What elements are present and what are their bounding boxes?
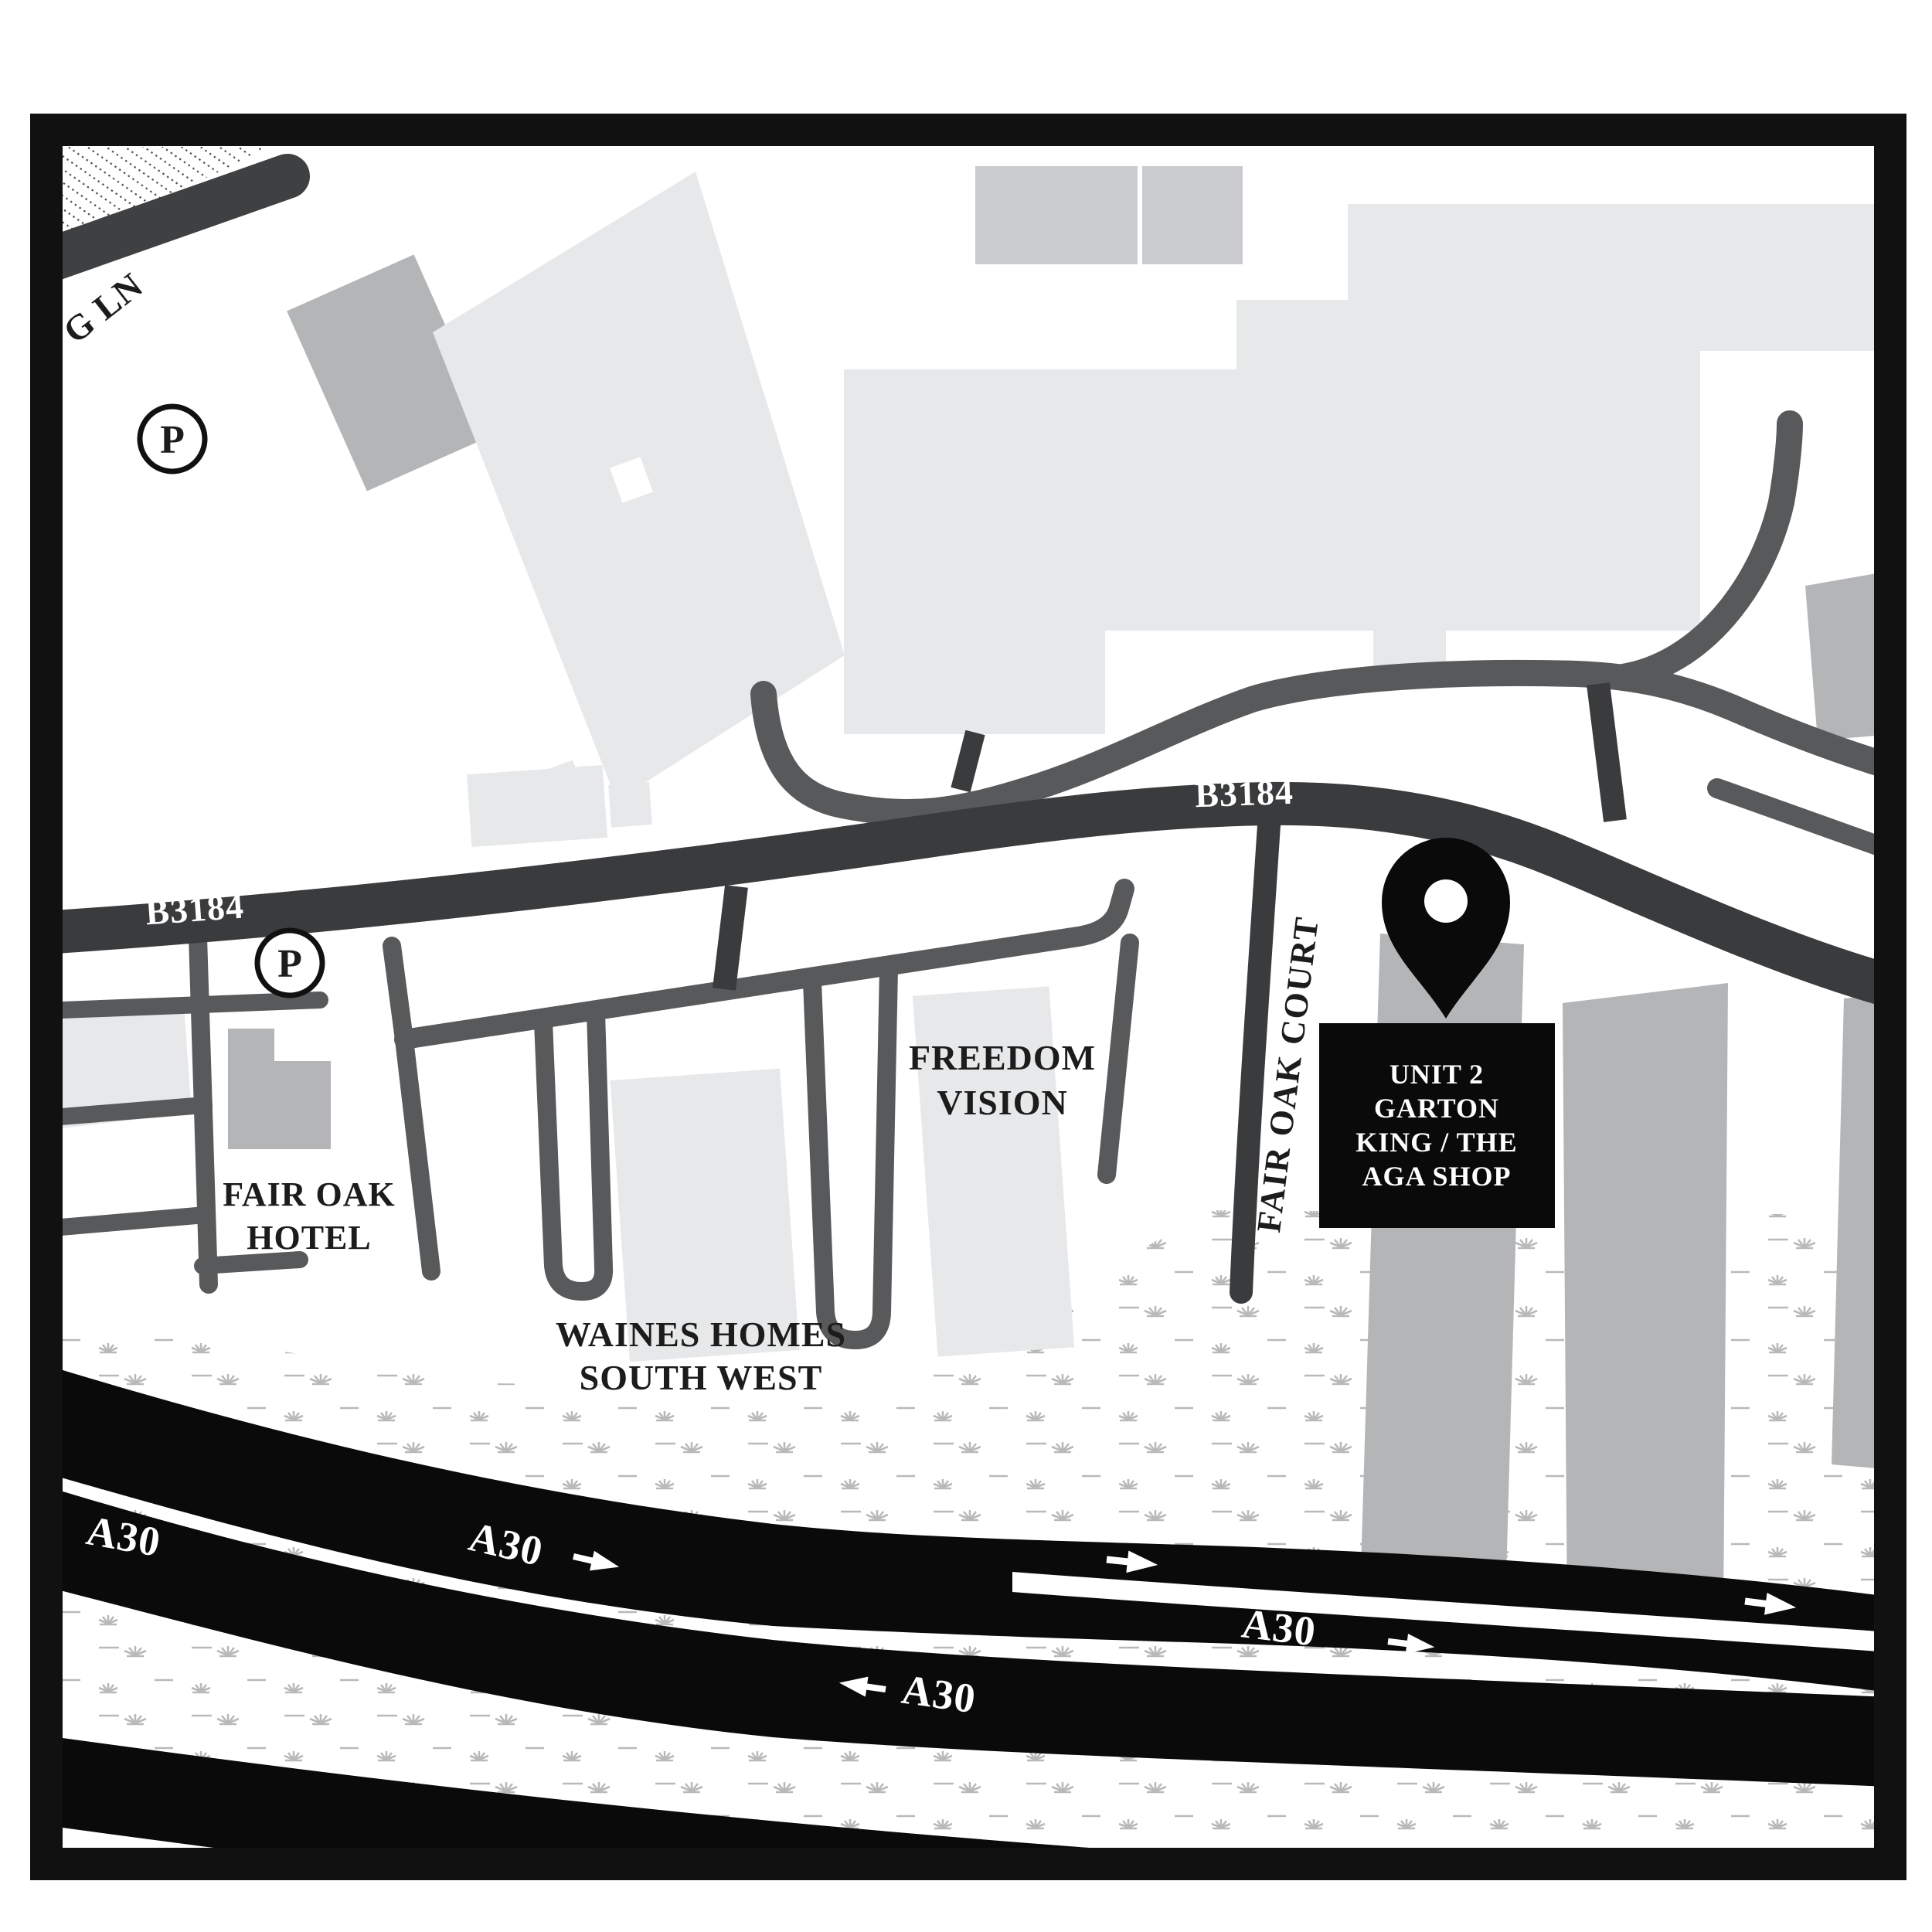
freedom-vision-label-line2: VISION [937,1083,1068,1122]
estate-loop-1 [543,1012,604,1291]
building-central-complex [844,204,1876,734]
svg-text:P: P [277,942,302,986]
b3184-label-west: B3184 [145,886,246,933]
lane-label: G LN [56,265,150,351]
fair-oak-hotel-label-line2: HOTEL [247,1219,372,1257]
estate-loop-2 [812,969,889,1340]
street-map: A30 A30 A30 A30 B3184 B3184 G LN FAIR OA… [0,0,1932,1932]
building-large-tilted [433,172,845,808]
east-diagonal-stub [1717,788,1890,850]
freedom-vision-label-line1: FREEDOM [909,1038,1096,1077]
b3184-curvy-connector [961,733,975,790]
hotel-stub-c [43,1215,206,1229]
destination-label-line: GARTON [1374,1093,1499,1124]
destination-marker: UNIT 2 GARTON KING / THE AGA SHOP [1319,838,1555,1228]
estate-east-prong [1107,943,1130,1175]
destination-label-line: KING / THE [1355,1127,1517,1158]
estate-west-diagonal [392,946,431,1271]
building-fair-oak-hotel [228,1029,331,1149]
destination-label-line: UNIT 2 [1389,1059,1484,1090]
destination-label-box [1319,1023,1555,1228]
b3184-east-connector [1598,684,1615,821]
building-right-edge-upper [1805,573,1876,740]
parking-icon: P [140,406,205,471]
location-pin-hole [1424,879,1468,923]
parking-icon: P [257,930,322,995]
hotel-stub-a [43,1000,320,1011]
building-small-1 [467,765,607,847]
a30-label: A30 [1240,1600,1319,1655]
waines-homes-label-line2: SOUTH WEST [580,1358,823,1397]
b3184-label-center: B3184 [1194,772,1294,815]
building-top-row-1 [975,166,1138,264]
fair-oak-hotel-label-line1: FAIR OAK [223,1175,396,1213]
svg-text:P: P [160,418,185,462]
building-east-slab [1563,983,1728,1621]
destination-label-line: AGA SHOP [1362,1161,1511,1192]
building-top-row-2 [1142,166,1243,264]
b3184-estate-connector [724,886,736,989]
building-small-2 [608,782,652,828]
waines-homes-label-line1: WAINES HOMES [556,1315,846,1354]
hotel-stub-d [202,1260,300,1266]
building-far-east-slab [1832,995,1876,1468]
map-canvas: A30 A30 A30 A30 B3184 B3184 G LN FAIR OA… [0,0,1932,1932]
